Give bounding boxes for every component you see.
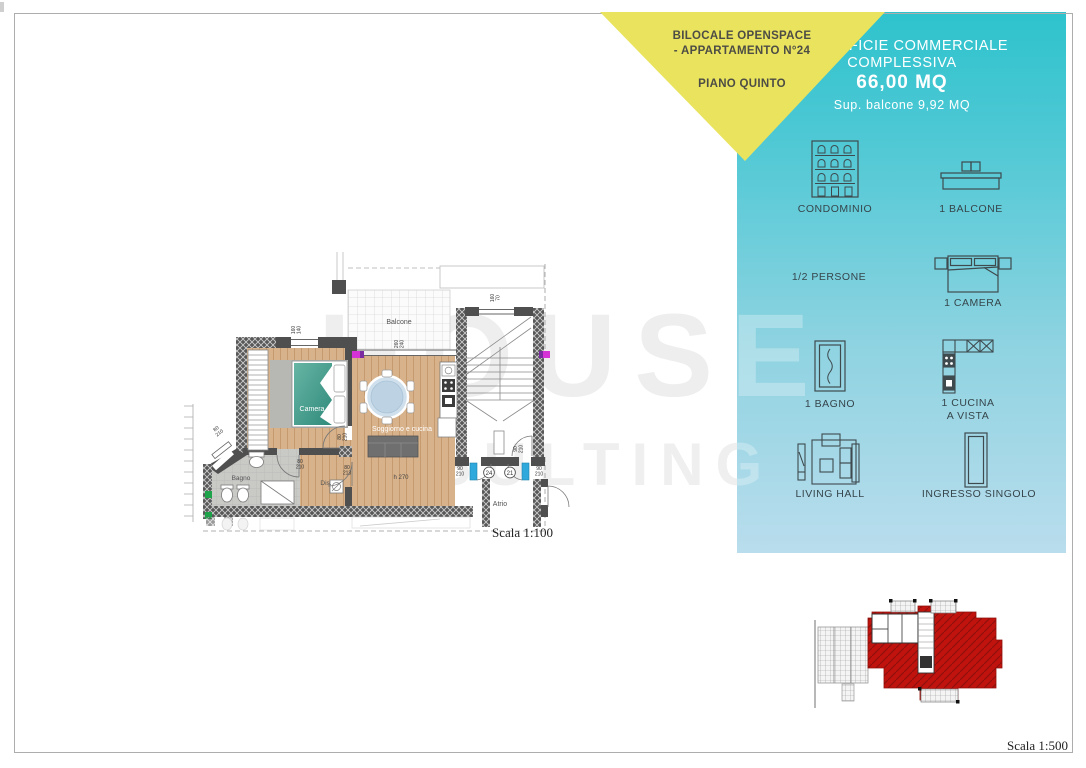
site-white-unit [872, 614, 918, 643]
cucina-icon [942, 339, 994, 395]
banner-line3: PIANO QUINTO [637, 78, 847, 90]
site-pergola [818, 627, 868, 683]
label-soggiorno: Soggiorno e cucina [372, 426, 432, 433]
feature-cucina-line1: 1 CUCINA [941, 397, 994, 409]
dim-stair-window: 16070 [490, 294, 501, 303]
feature-ingresso: INGRESSO SINGOLO [922, 488, 1036, 500]
apartment-numbers: 24 21 [484, 467, 516, 478]
sink [250, 457, 264, 468]
dim-door21: 90210 [535, 466, 544, 477]
bidet [238, 488, 249, 502]
ingresso-icon [964, 432, 988, 488]
summary-balcony: Sup. balcone 9,92 MQ [752, 98, 1052, 112]
living-hall-icon [796, 432, 870, 488]
label-balcone: Balcone [386, 319, 411, 326]
feature-cucina-line2: A VISTA [947, 410, 989, 422]
feature-persone: 1/2 PERSONE [792, 271, 866, 283]
dim-balcone-door: 260240 [394, 340, 405, 349]
drawing-sheet: HOUSE CONSULTING [0, 0, 1086, 768]
door-24-leaf [470, 463, 477, 480]
kitchen-counter [438, 362, 457, 437]
dim-niche-door: 80210 [211, 424, 225, 438]
stairwell [467, 317, 533, 456]
pillow [334, 365, 345, 392]
bagno-icon [814, 340, 846, 392]
banner-line2: - APPARTAMENTO N°24 [637, 45, 847, 57]
feature-living-hall: LIVING HALL [795, 488, 864, 500]
apartment-24-label: 24 [486, 471, 493, 477]
scale-1-500: Scala 1:500 [1007, 738, 1068, 753]
label-camera: Camera [300, 406, 325, 413]
dim-camera-window: 160140 [291, 326, 302, 335]
page-edge-artifact [0, 2, 4, 12]
camera-icon [934, 250, 1012, 294]
info-panel: HOUSE CONSULTING SUPERFICIE COMMERCIALE … [737, 12, 1066, 553]
feature-camera: 1 CAMERA [944, 297, 1002, 309]
label-atrio: Atrio [493, 501, 508, 508]
feature-condominio: CONDOMINIO [798, 203, 872, 215]
scale-1-100: Scala 1:100 [492, 525, 553, 540]
site-plan [815, 599, 1002, 708]
label-bagno: Bagno [232, 475, 251, 482]
summary-title-line2: COMPLESSIVA [752, 55, 1052, 71]
green-marker [205, 491, 212, 498]
banner-line1: BILOCALE OPENSPACE [637, 30, 847, 42]
magenta-marker [352, 351, 360, 358]
purple-marker [539, 351, 543, 358]
feature-balcone: 1 BALCONE [939, 203, 1002, 215]
magenta-marker [543, 351, 550, 358]
feature-bagno: 1 BAGNO [805, 398, 855, 410]
purple-marker [360, 351, 364, 358]
balcone-icon [939, 160, 1003, 192]
dim-door24: 90210 [456, 466, 465, 477]
sofa [368, 436, 418, 457]
label-dis: Dis. [320, 480, 331, 487]
door-21-leaf [522, 463, 529, 480]
label-height: h 270 [393, 475, 409, 481]
lower-floor-ghost [206, 517, 470, 530]
condominio-icon [811, 140, 859, 198]
apartment-21-label: 21 [507, 471, 514, 477]
toilet [222, 488, 233, 502]
pillow [334, 396, 345, 423]
watermark-line2-overlay: CONSULTING [737, 430, 774, 499]
